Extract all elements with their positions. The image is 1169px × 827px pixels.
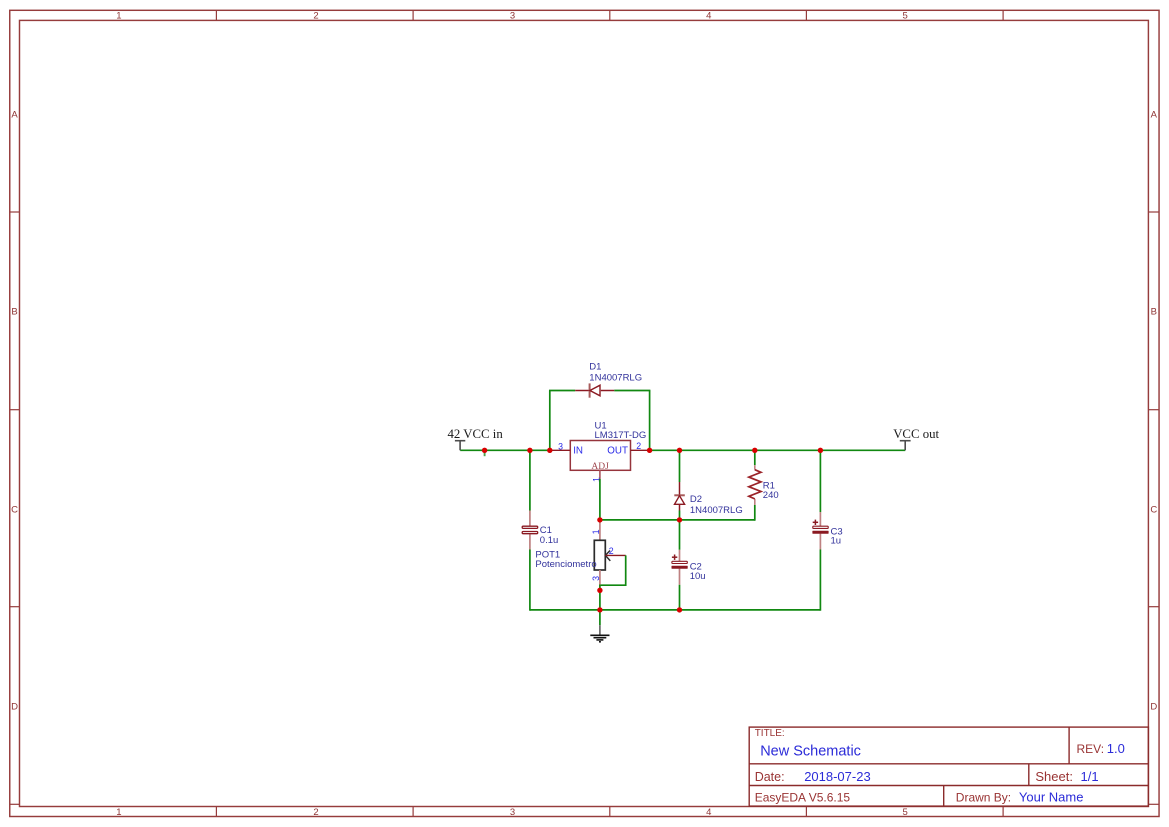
svg-text:VCC out: VCC out <box>893 427 939 441</box>
svg-text:Sheet:: Sheet: <box>1035 769 1073 784</box>
svg-text:Date:: Date: <box>755 770 785 784</box>
svg-text:A: A <box>1151 110 1158 121</box>
svg-text:3: 3 <box>591 576 601 581</box>
svg-text:2: 2 <box>609 546 614 556</box>
svg-text:Your Name: Your Name <box>1019 789 1084 804</box>
svg-text:D: D <box>1150 701 1157 712</box>
svg-text:1: 1 <box>116 11 121 22</box>
svg-text:C: C <box>1150 504 1157 515</box>
svg-text:1N4007RLG: 1N4007RLG <box>589 373 642 384</box>
svg-text:A: A <box>11 110 18 121</box>
svg-text:1.0: 1.0 <box>1107 741 1125 756</box>
svg-text:B: B <box>11 307 17 318</box>
svg-text:2: 2 <box>313 807 318 818</box>
svg-text:5: 5 <box>903 807 908 818</box>
svg-text:D1: D1 <box>589 362 601 373</box>
svg-text:2018-07-23: 2018-07-23 <box>804 769 871 784</box>
svg-text:2: 2 <box>636 441 641 451</box>
svg-text:4: 4 <box>706 807 711 818</box>
svg-text:Potenciometro: Potenciometro <box>535 559 596 570</box>
svg-text:B: B <box>1151 307 1157 318</box>
svg-text:D: D <box>11 701 18 712</box>
svg-text:4: 4 <box>706 11 711 22</box>
svg-text:Drawn By:: Drawn By: <box>956 791 1011 805</box>
svg-text:0.1u: 0.1u <box>540 535 559 546</box>
svg-text:3: 3 <box>510 11 515 22</box>
svg-text:ADJ: ADJ <box>591 462 609 472</box>
svg-text:3: 3 <box>510 807 515 818</box>
svg-text:EasyEDA V5.6.15: EasyEDA V5.6.15 <box>755 791 851 805</box>
svg-text:2: 2 <box>313 11 318 22</box>
svg-text:LM317T-DG: LM317T-DG <box>595 430 647 441</box>
svg-text:OUT: OUT <box>607 446 628 457</box>
svg-text:1: 1 <box>116 807 121 818</box>
svg-text:1N4007RLG: 1N4007RLG <box>690 505 743 516</box>
svg-text:REV:: REV: <box>1077 742 1105 756</box>
svg-text:New Schematic: New Schematic <box>760 744 861 760</box>
svg-text:3: 3 <box>558 442 563 452</box>
svg-text:240: 240 <box>763 490 779 501</box>
svg-text:1: 1 <box>591 529 601 534</box>
svg-text:TITLE:: TITLE: <box>755 728 785 739</box>
svg-text:C: C <box>11 504 18 515</box>
svg-text:10u: 10u <box>690 571 706 582</box>
svg-text:5: 5 <box>903 11 908 22</box>
svg-text:IN: IN <box>573 446 583 457</box>
svg-text:1u: 1u <box>831 536 842 547</box>
svg-text:1/1: 1/1 <box>1081 769 1099 784</box>
svg-text:D2: D2 <box>690 494 702 505</box>
svg-text:42 VCC in: 42 VCC in <box>448 427 504 441</box>
